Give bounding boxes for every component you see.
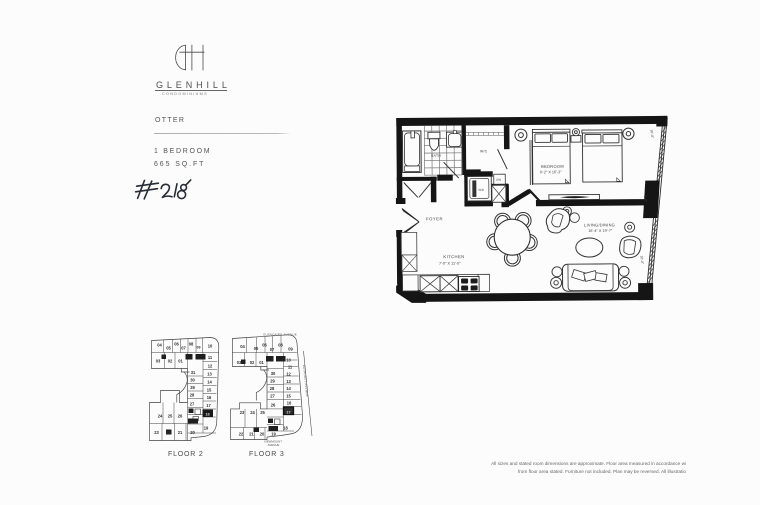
- svg-text:FOYER: FOYER: [426, 216, 443, 221]
- svg-text:DW: DW: [496, 178, 501, 182]
- svg-text:27: 27: [270, 394, 275, 399]
- svg-text:22: 22: [239, 432, 244, 437]
- svg-text:16: 16: [287, 401, 292, 406]
- svg-text:16: 16: [207, 395, 212, 400]
- svg-text:04: 04: [240, 344, 245, 349]
- svg-text:10: 10: [286, 358, 291, 363]
- svg-text:16'-0": 16'-0": [639, 255, 644, 265]
- svg-text:05: 05: [166, 346, 171, 351]
- svg-text:18: 18: [205, 413, 209, 417]
- svg-text:BATH: BATH: [431, 154, 441, 158]
- svg-text:12: 12: [286, 372, 291, 377]
- svg-text:BEDROOM: BEDROOM: [541, 164, 564, 169]
- svg-text:LIVING/DINING: LIVING/DINING: [584, 222, 615, 227]
- svg-text:23: 23: [240, 410, 245, 415]
- svg-text:09: 09: [288, 347, 293, 352]
- svg-text:20: 20: [260, 432, 265, 437]
- svg-text:02: 02: [250, 360, 255, 365]
- svg-text:30: 30: [190, 378, 195, 383]
- svg-text:04: 04: [157, 343, 162, 348]
- svg-text:08: 08: [278, 343, 283, 348]
- svg-text:31: 31: [191, 370, 196, 375]
- svg-text:W/C: W/C: [480, 149, 488, 153]
- svg-text:14: 14: [286, 386, 291, 391]
- svg-text:09: 09: [197, 346, 201, 350]
- svg-text:07: 07: [270, 347, 275, 352]
- svg-text:18: 18: [283, 426, 288, 431]
- svg-text:08: 08: [189, 342, 194, 347]
- svg-text:29: 29: [190, 385, 195, 390]
- svg-text:03: 03: [156, 359, 161, 364]
- svg-text:16'-4" X 19'-7": 16'-4" X 19'-7": [588, 229, 613, 233]
- svg-text:17: 17: [286, 410, 290, 414]
- svg-text:BATHURST AVENUE: BATHURST AVENUE: [302, 365, 309, 397]
- svg-text:27: 27: [190, 402, 195, 407]
- svg-text:AVENUE: AVENUE: [268, 443, 280, 447]
- svg-text:25: 25: [168, 414, 173, 419]
- svg-text:19: 19: [271, 432, 276, 437]
- svg-text:13: 13: [207, 372, 212, 377]
- svg-text:7'-0" X 11'-0": 7'-0" X 11'-0": [439, 262, 461, 266]
- svg-text:24: 24: [158, 414, 163, 419]
- svg-text:16'-0": 16'-0": [649, 129, 654, 139]
- svg-text:28: 28: [190, 393, 195, 398]
- svg-text:5'-0": 5'-0": [643, 195, 648, 203]
- svg-text:03: 03: [237, 360, 242, 365]
- svg-text:13: 13: [286, 379, 291, 384]
- svg-text:30: 30: [271, 371, 276, 376]
- svg-text:20: 20: [190, 430, 195, 435]
- svg-text:12: 12: [208, 364, 213, 369]
- svg-text:06: 06: [262, 343, 267, 348]
- svg-text:W/D: W/D: [478, 188, 484, 192]
- svg-text:21: 21: [249, 432, 254, 437]
- svg-text:21: 21: [178, 430, 183, 435]
- svg-text:10: 10: [208, 344, 213, 349]
- svg-text:15: 15: [207, 388, 212, 393]
- svg-text:26: 26: [271, 403, 276, 408]
- svg-text:25: 25: [260, 410, 265, 415]
- svg-text:24: 24: [250, 410, 255, 415]
- svg-text:11: 11: [208, 355, 213, 360]
- svg-text:11: 11: [288, 365, 293, 370]
- svg-text:15: 15: [286, 394, 291, 399]
- svg-text:01: 01: [259, 360, 264, 365]
- svg-text:KITCHEN: KITCHEN: [443, 254, 464, 259]
- svg-text:GLENCAIRN AVENUE: GLENCAIRN AVENUE: [263, 333, 297, 337]
- svg-text:19: 19: [204, 426, 209, 431]
- svg-text:01: 01: [178, 359, 183, 364]
- svg-text:23: 23: [154, 430, 159, 435]
- svg-text:28: 28: [270, 386, 275, 391]
- svg-text:22: 22: [166, 430, 171, 435]
- svg-text:05: 05: [254, 346, 259, 351]
- svg-text:26: 26: [178, 414, 183, 419]
- svg-text:07: 07: [181, 346, 186, 351]
- svg-text:06: 06: [174, 342, 179, 347]
- svg-text:29: 29: [270, 379, 275, 384]
- svg-text:17: 17: [206, 403, 211, 408]
- svg-text:9'-2" X 16'-3": 9'-2" X 16'-3": [540, 170, 563, 174]
- svg-text:02: 02: [168, 359, 173, 364]
- svg-text:14: 14: [207, 380, 212, 385]
